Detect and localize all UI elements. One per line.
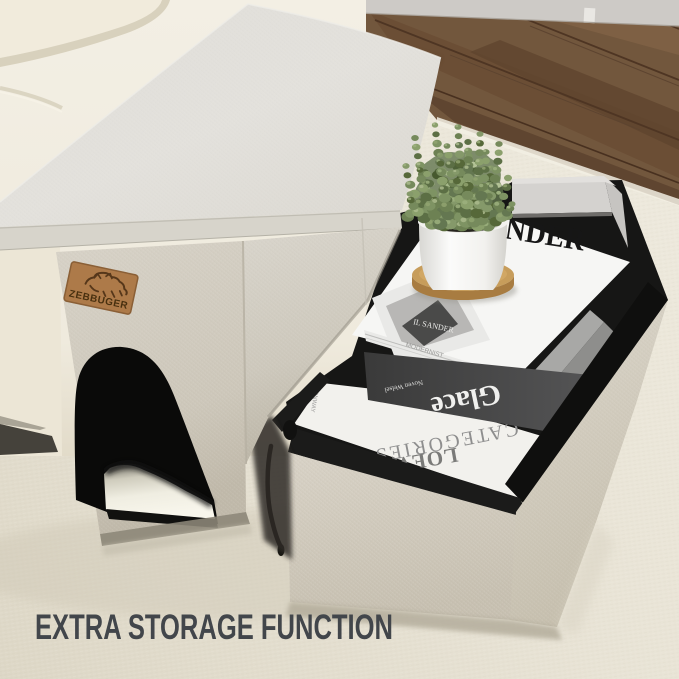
svg-text:EXTRA STORAGE FUNCTION: EXTRA STORAGE FUNCTION	[35, 608, 393, 647]
